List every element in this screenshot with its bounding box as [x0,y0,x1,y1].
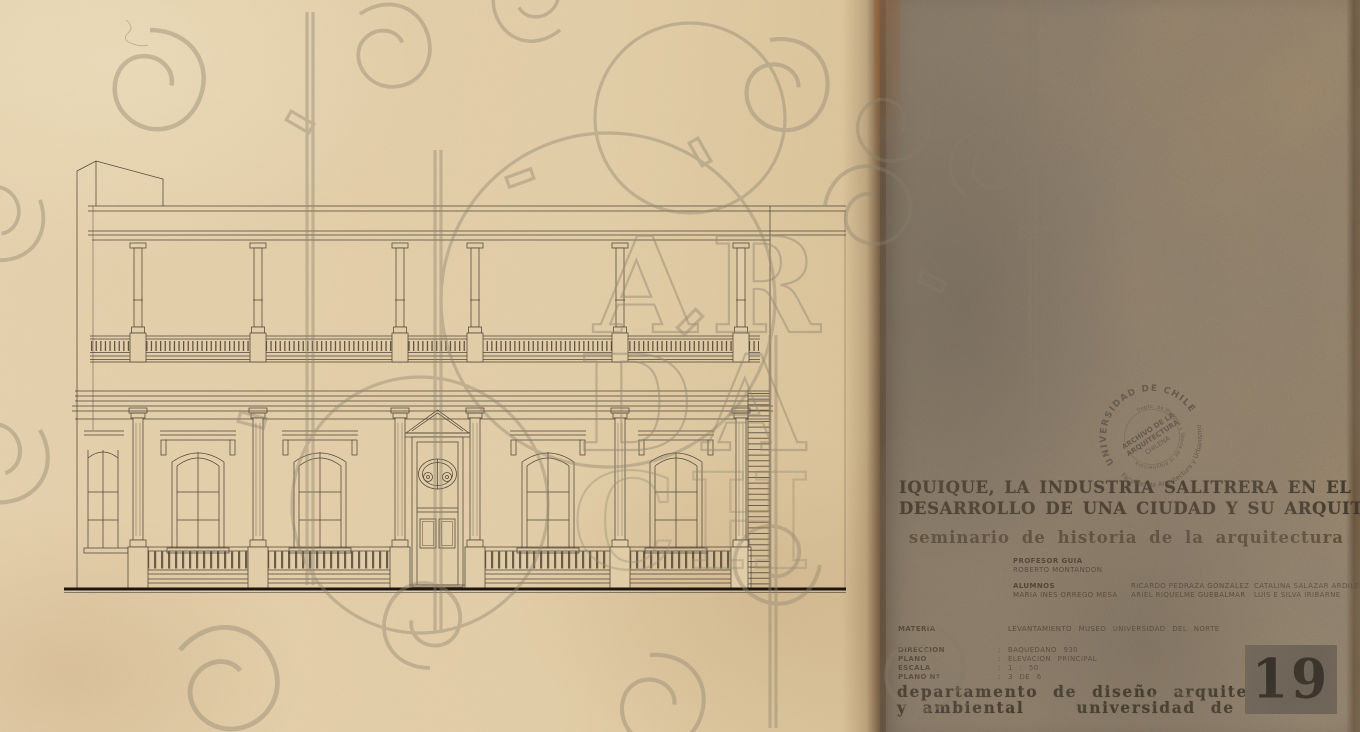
info-label: PLANO Nº [898,673,998,681]
archival-sheet-scan: IQUIQUE, LA INDUSTRIA SALITRERA EN EL OR… [0,0,1360,732]
department-line2-left: y ambiental [897,698,1024,717]
student-name: RICARDO PEDRAZA GONZALEZ [1131,582,1249,590]
professor-label: PROFESOR GUIA [1013,557,1083,565]
info-row-plano: PLANO:ELEVACION PRINCIPAL [898,655,1097,663]
info-label: PLANO [898,655,998,663]
info-value: 3 DE 6 [1008,673,1042,681]
info-value: BAQUEDANO 930 [1008,646,1078,654]
info-label: ESCALA [898,664,998,672]
archive-stamp: UNIVERSIDAD DE CHILE Facultad de Arquite… [1086,371,1218,503]
info-row-plano-numero: PLANO Nº:3 DE 6 [898,673,1042,681]
department-line2: y ambiental universidad de chile [897,698,1300,717]
professor-name: ROBERTO MONTANDON [1013,566,1102,574]
student-name: MARIA INES ORREGO MESA [1013,591,1118,599]
svg-text:UNIVERSIDAD DE CHILE: UNIVERSIDAD DE CHILE [1086,371,1198,467]
students-label: ALUMNOS [1013,582,1055,590]
student-name: ARIEL RIQUELME GUEBALMAR [1131,591,1246,599]
info-value: LEVANTAMIENTO MUSEO UNIVERSIDAD DEL NORT… [1008,625,1220,633]
student-name: LUIS E SILVA IRIBARNE [1254,591,1341,599]
student-name: CATALINA SALAZAR ARDILES [1254,582,1360,590]
info-row-direccion: DIRECCION:BAQUEDANO 930 [898,646,1078,654]
sheet-number-box: 19 [1245,645,1337,714]
info-label: DIRECCION [898,646,998,654]
seminar-subtitle: seminario de historia de la arquitectura [909,528,1344,547]
info-value: ELEVACION PRINCIPAL [1008,655,1097,663]
building-elevation-drawing [0,0,880,732]
info-row-materia: MATERIALEVANTAMIENTO MUSEO UNIVERSIDAD D… [898,625,1220,633]
sheet-number: 19 [1252,648,1330,711]
info-value: 1 : 50 [1008,664,1039,672]
stamp-ring-top-text: UNIVERSIDAD DE CHILE [1086,371,1198,467]
title-block-panel [880,0,1360,732]
info-row-escala: ESCALA:1 : 50 [898,664,1039,672]
info-label: MATERIA [898,625,998,633]
page-right-edge [1346,0,1360,732]
